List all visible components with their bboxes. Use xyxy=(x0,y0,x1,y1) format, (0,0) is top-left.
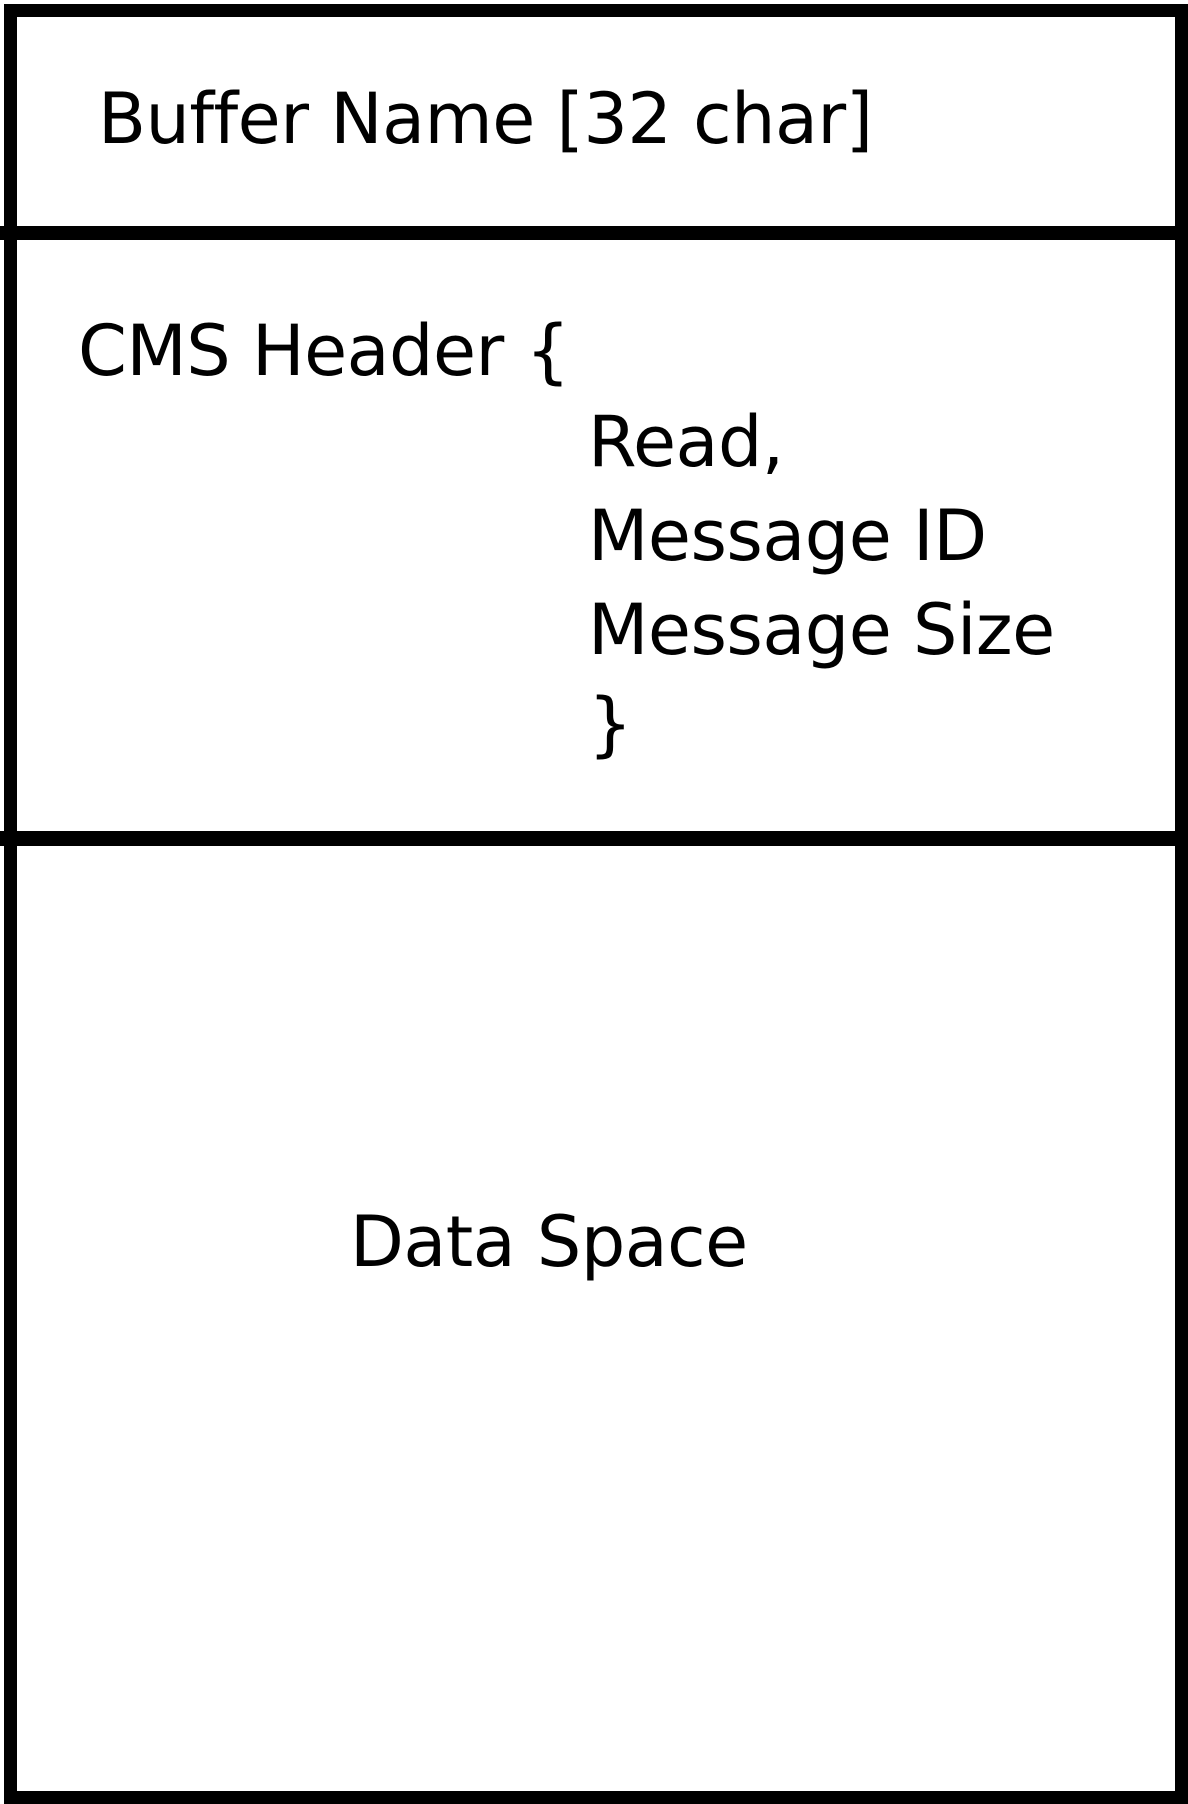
cms-field-read: Read, xyxy=(588,395,1055,489)
cms-field-message-id: Message ID xyxy=(588,489,1055,583)
cms-closing-brace: } xyxy=(588,677,1055,771)
buffer-name-label: Buffer Name [32 char] xyxy=(98,84,873,154)
buffer-layout-diagram: Buffer Name [32 char] CMS Header { Read,… xyxy=(0,0,1188,1804)
data-space-label: Data Space xyxy=(350,1207,748,1277)
cms-field-message-size: Message Size xyxy=(588,583,1055,677)
section-divider-2 xyxy=(0,831,1188,846)
diagram-outer-border xyxy=(4,4,1188,1804)
section-divider-1 xyxy=(0,226,1188,240)
cms-header-label: CMS Header { xyxy=(78,316,570,386)
cms-header-fields: Read, Message ID Message Size } xyxy=(588,395,1055,771)
